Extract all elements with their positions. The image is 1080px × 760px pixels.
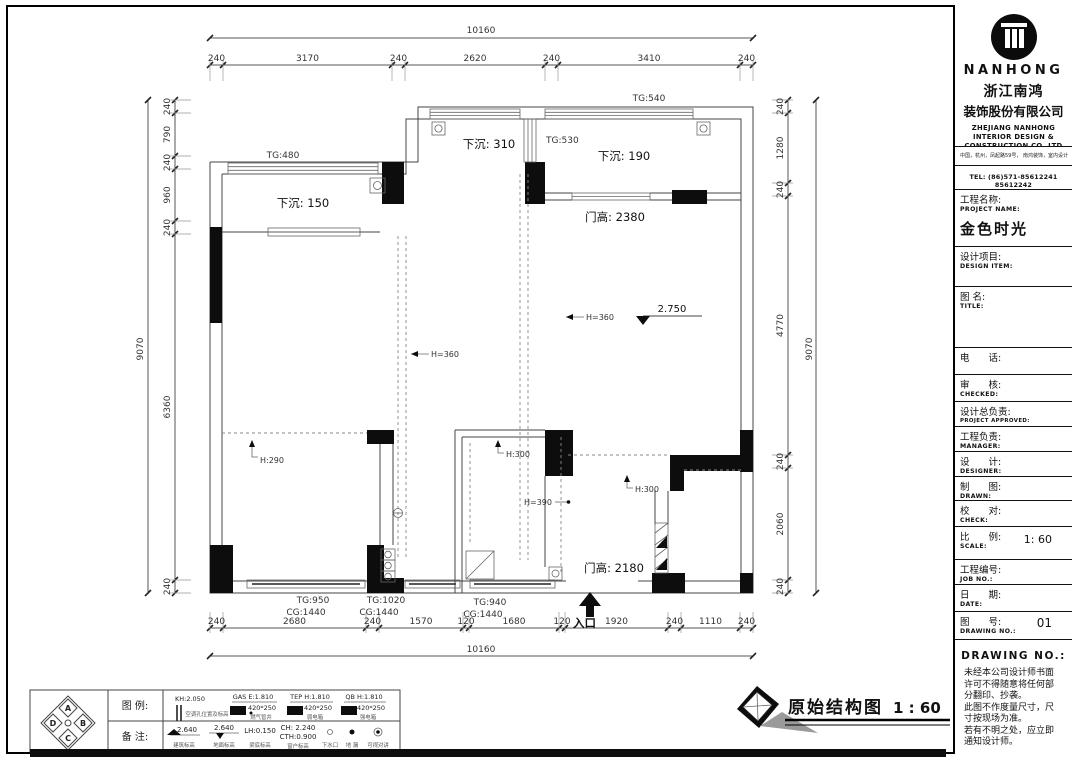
note-item-floor: 2.640: [214, 724, 234, 732]
legend-item-tep-size: 420*250: [304, 704, 332, 712]
note-item-drainpipe-sub: 下水口: [322, 741, 338, 749]
title-block: NANHONG 浙江南鸿 装饰股份有限公司 ZHEJIANG NANHONG I…: [953, 5, 1072, 754]
checked-row: 审 核: CHECKED:: [955, 375, 1072, 402]
dim-segment: 1920: [605, 617, 628, 627]
label-tg1020: TG:1020: [366, 596, 406, 606]
job-no-label-en: JOB NO.:: [960, 576, 1067, 583]
designer-label-en: DESIGNER:: [960, 468, 1067, 475]
disclaimer-line: 若有不明之处，应立即: [960, 726, 1067, 738]
project-label-en: PROJECT NAME:: [960, 206, 1067, 213]
scale-row: 比 例: SCALE: 1: 60: [955, 527, 1072, 560]
label-entrance: 入口: [573, 616, 596, 630]
company-name-cn-2: 装饰股份有限公司: [960, 101, 1067, 120]
disclaimer-line: 许可不得随意将任何部: [960, 680, 1067, 692]
company-en-line: ZHEJIANG NANHONG: [960, 124, 1067, 133]
dim-top-total: 10160: [467, 26, 496, 36]
scale-value: 1: 60: [1024, 533, 1052, 546]
compass-icon: A B C D: [41, 696, 95, 750]
company-tel: TEL: (86)571-85612241 85612242: [955, 166, 1072, 190]
column-logo-glyph: [991, 14, 1037, 60]
dim-segment: 3170: [296, 54, 319, 64]
phone-label-cn: 电 话:: [960, 350, 1067, 364]
label-h390: H=390: [524, 498, 552, 507]
floor-plan-sheet: 10160 10160 9070 9070 240317024026202403…: [0, 0, 1080, 760]
dim-segment: 2620: [464, 54, 487, 64]
compass-letter: A: [65, 704, 72, 713]
check-label-en: CHECK:: [960, 517, 1067, 524]
legend-item-kh: KH:2.050: [175, 695, 205, 703]
note-item-floor-sub: 地面标高: [213, 741, 235, 749]
dim-segment: 240: [364, 617, 381, 627]
legend-item-gas-size: 420*250: [248, 704, 276, 712]
dim-segment: 240: [776, 98, 786, 115]
legend-item-tep-sub: 弱电箱: [307, 713, 324, 721]
dim-bottom-total: 10160: [467, 645, 496, 655]
label-h290: H:290: [260, 456, 284, 465]
legend-item-kh-sub: 空调孔位置及标高: [185, 710, 229, 718]
design-item-row: 设计项目: DESIGN ITEM:: [955, 247, 1072, 287]
label-level: 2.750: [658, 304, 687, 315]
disclaimer-section: DRAWING NO.: 未经本公司设计师书面 许可不得随意将任何部 分翻印、抄…: [955, 640, 1072, 760]
dimension-total-lines: [145, 35, 819, 659]
dim-segment: 1680: [503, 617, 526, 627]
company-en-line: INTERIOR DESIGN &: [960, 133, 1067, 142]
designer-row: 设 计: DESIGNER:: [955, 452, 1072, 477]
checked-label-en: CHECKED:: [960, 391, 1067, 398]
disclaimer-heading: DRAWING NO.:: [960, 650, 1067, 662]
note-item-lh-sub: 梁底标高: [249, 741, 271, 749]
drawn-label-cn: 制 图:: [960, 479, 1067, 493]
disclaimer-line: 分翻印、抄袭。: [960, 691, 1067, 703]
label-door-top: 门高: 2380: [585, 210, 645, 224]
legend-item-qb: QB H:1.810: [345, 693, 382, 701]
company-name-en: ZHEJIANG NANHONG INTERIOR DESIGN & CONST…: [960, 124, 1067, 147]
note-item-struct: 2.640: [177, 726, 197, 734]
dim-segment: 6360: [163, 395, 173, 418]
check-label-cn: 校 对:: [960, 503, 1067, 517]
entrance-arrow-icon: [579, 592, 601, 617]
dim-segment: 3410: [638, 54, 661, 64]
footer-bar: [30, 749, 946, 757]
project-name-row: 工程名称: PROJECT NAME: 金色时光: [955, 190, 1072, 247]
company-address: 中国，杭州，凤起路59号， 南鸿装饰，室内设计: [955, 147, 1072, 166]
legend-item-qb-size: 420*250: [357, 704, 385, 712]
label-tg530: TG:530: [545, 136, 579, 146]
label-cg950: CG:1440: [286, 608, 325, 618]
dim-segment: 240: [163, 98, 173, 115]
label-h360-right: H=360: [586, 313, 614, 322]
job-no-label-cn: 工程编号:: [960, 562, 1067, 576]
label-tg480: TG:480: [266, 151, 300, 161]
label-tg540: TG:540: [632, 94, 666, 104]
notes-label: 备 注:: [122, 730, 149, 743]
label-cg1020: CG:1440: [359, 608, 398, 618]
dim-segment: 240: [776, 453, 786, 470]
note-item-lh: LH:0.150: [244, 727, 276, 735]
note-item-cth: CTH:0.900: [280, 733, 317, 741]
floor-plan-drawing: 10160 10160 9070 9070 240317024026202403…: [0, 0, 953, 760]
label-h300-bath: H:300: [506, 450, 530, 459]
dim-segment: 240: [738, 617, 755, 627]
wall-piers: [210, 162, 753, 593]
project-label-cn: 工程名称:: [960, 192, 1067, 206]
dim-segment: 240: [738, 54, 755, 64]
legend-item-tep: TEP H:1.810: [289, 693, 330, 701]
date-label-cn: 日 期:: [960, 587, 1067, 601]
note-item-ch-sub: 窗户标高: [287, 742, 309, 750]
manager-label-cn: 工程负责:: [960, 429, 1067, 443]
dim-left-total: 9070: [136, 337, 146, 360]
drawing-no-value: 01: [1037, 616, 1052, 630]
label-sink310: 下沉: 310: [463, 137, 515, 151]
dim-segment: 790: [163, 126, 173, 143]
legend-item-gas: GAS E:1.810: [233, 693, 274, 701]
project-name-value: 金色时光: [960, 218, 1067, 239]
dim-segment: 240: [208, 617, 225, 627]
legend-label: 图 例:: [122, 699, 149, 712]
legend-table: A B C D 图 例: 备 注: KH:2.050 空调孔位置及标高 GAS …: [30, 690, 400, 752]
job-no-row: 工程编号: JOB NO.:: [955, 560, 1072, 585]
dim-right-total: 9070: [805, 337, 815, 360]
approved-row: 设计总负责: PROJECT APPROVED:: [955, 402, 1072, 427]
label-sink190: 下沉: 190: [598, 149, 650, 163]
designer-label-cn: 设 计:: [960, 454, 1067, 468]
label-sink150: 下沉: 150: [277, 196, 329, 210]
drawing-no-row: 图 号: DRAWING NO.: 01: [955, 612, 1072, 640]
approved-label-en: PROJECT APPROVED:: [960, 418, 1067, 424]
brand-name: NANHONG: [960, 63, 1067, 78]
dim-segment: 240: [163, 219, 173, 236]
legend-item-gas-sub: 燃气管井: [250, 713, 272, 721]
note-item-drain-sub: 地 漏: [346, 741, 359, 749]
dim-segment: 2680: [283, 617, 306, 627]
dim-segment: 120: [553, 617, 570, 627]
label-tg940: TG:940: [473, 598, 507, 608]
windows: [222, 109, 741, 592]
dim-segment: 2060: [776, 512, 786, 535]
compass-letter: B: [80, 719, 86, 728]
dim-segment: 240: [666, 617, 683, 627]
nanhong-logo-icon: [991, 14, 1037, 60]
dim-segment: 1570: [410, 617, 433, 627]
dim-segment: 240: [776, 578, 786, 595]
label-tg950: TG:950: [296, 596, 330, 606]
disclaimer-line: 未经本公司设计师书面: [960, 668, 1067, 680]
company-name-cn-1: 浙江南鸿: [960, 81, 1067, 101]
legend-row-2: 2.640 建筑标高 2.640 地面标高 LH:0.150 梁底标高 CH: …: [167, 724, 389, 750]
drawing-title: 原始结构图: [788, 697, 883, 718]
dim-segment: 240: [163, 154, 173, 171]
dim-segment: 240: [776, 181, 786, 198]
note-item-ch: CH: 2.240: [281, 724, 316, 732]
manager-label-en: MANAGER:: [960, 443, 1067, 450]
dim-segment: 960: [163, 186, 173, 203]
label-h360-left: H=360: [431, 350, 459, 359]
dim-segment: 240: [163, 578, 173, 595]
dim-segment: 240: [543, 54, 560, 64]
outer-walls: [210, 107, 753, 593]
dim-segment: 240: [390, 54, 407, 64]
approved-label-cn: 设计总负责:: [960, 404, 1067, 418]
disclaimer-line: 此图不作度量尺寸，尺: [960, 703, 1067, 715]
compass-letter: D: [50, 719, 57, 728]
design-item-label-en: DESIGN ITEM:: [960, 263, 1067, 270]
drawing-name-row: 图 名: TITLE:: [955, 287, 1072, 348]
legend-row-1: KH:2.050 空调孔位置及标高 GAS E:1.810 420*250 燃气…: [175, 693, 386, 721]
dim-segment: 1110: [699, 617, 722, 627]
date-row: 日 期: DATE:: [955, 585, 1072, 612]
check-row: 校 对: CHECK:: [955, 501, 1072, 527]
drawing-name-label-en: TITLE:: [960, 303, 1067, 310]
dim-segment: 240: [208, 54, 225, 64]
design-item-label-cn: 设计项目:: [960, 249, 1067, 263]
label-door-entry: 门高: 2180: [584, 561, 644, 575]
drawing-name-label-cn: 图 名:: [960, 289, 1067, 303]
drawn-label-en: DRAWN:: [960, 493, 1067, 500]
checked-label-cn: 审 核:: [960, 377, 1067, 391]
dim-segment: 4770: [776, 314, 786, 337]
label-h300-right: H:300: [635, 485, 659, 494]
dashed-lines: [222, 174, 741, 572]
date-label-en: DATE:: [960, 601, 1067, 608]
dim-segment: 1280: [776, 136, 786, 159]
phone-row: 电 话:: [955, 348, 1072, 375]
drawing-scale: 1 : 60: [893, 699, 941, 717]
disclaimer-line: 通知设计师。: [960, 737, 1067, 749]
company-header: NANHONG 浙江南鸿 装饰股份有限公司 ZHEJIANG NANHONG I…: [955, 5, 1072, 147]
label-cg940: CG:1440: [463, 610, 502, 620]
drawn-row: 制 图: DRAWN:: [955, 477, 1072, 501]
legend-item-qb-sub: 强电箱: [360, 713, 377, 721]
annotation-leaders: [249, 314, 702, 504]
note-item-intercom-sub: 可视对讲: [367, 741, 389, 749]
disclaimer-line: 寸按现场为准。: [960, 714, 1067, 726]
compass-letter: C: [65, 734, 71, 743]
note-item-struct-sub: 建筑标高: [173, 741, 195, 749]
manager-row: 工程负责: MANAGER:: [955, 427, 1072, 452]
